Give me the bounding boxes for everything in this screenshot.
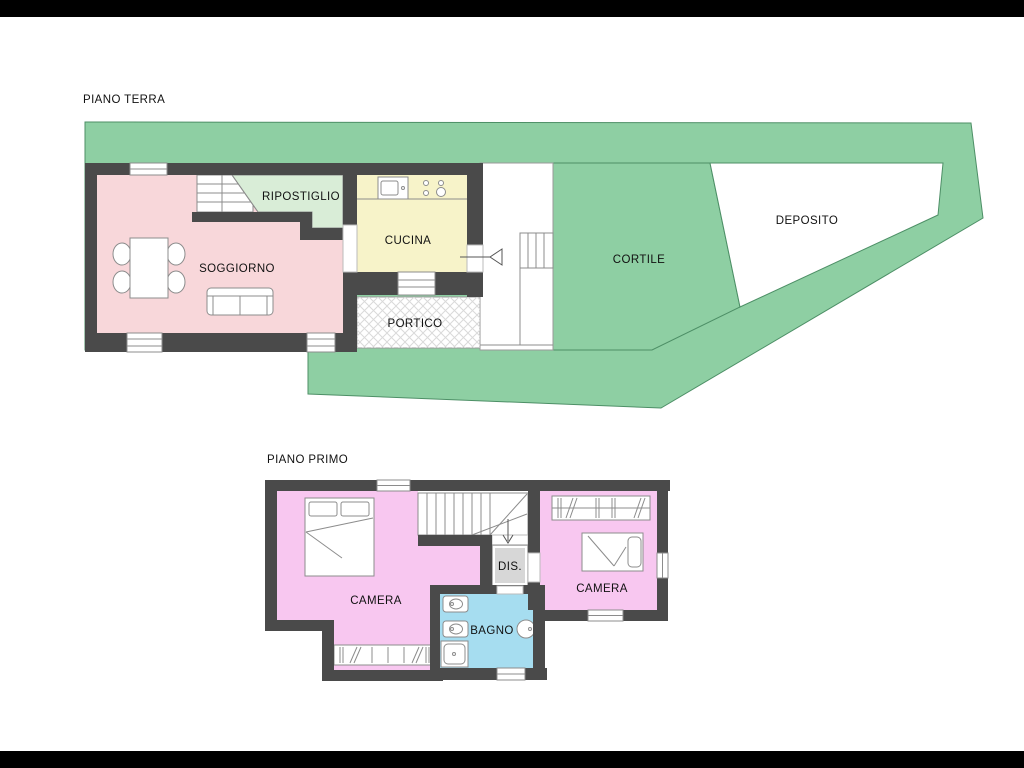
letterbox-bottom bbox=[0, 751, 1024, 768]
wardrobe-2-icon bbox=[552, 496, 650, 520]
first-floor-plan: PIANO PRIMO bbox=[265, 454, 670, 681]
door-dis-bagno bbox=[497, 586, 523, 594]
letterbox-top bbox=[0, 0, 1024, 17]
room-label-deposito: DEPOSITO bbox=[776, 215, 838, 227]
window-bagno-bottom bbox=[497, 668, 525, 680]
window-bottom-1 bbox=[127, 333, 162, 352]
sink-icon bbox=[378, 177, 408, 199]
shower-icon bbox=[441, 641, 468, 667]
wardrobe-1-icon bbox=[334, 645, 433, 665]
window-camera2-bottom bbox=[588, 610, 623, 621]
door-cucina-entry bbox=[467, 245, 483, 272]
room-label-cucina: CUCINA bbox=[385, 235, 432, 247]
window-first-top bbox=[377, 480, 410, 491]
double-bed-icon bbox=[305, 498, 374, 576]
room-label-dis: DIS. bbox=[498, 561, 522, 573]
bidet-icon bbox=[443, 621, 468, 637]
room-label-camera-1: CAMERA bbox=[350, 595, 402, 607]
room-cucina bbox=[357, 175, 467, 272]
washbasin-icon bbox=[517, 620, 535, 638]
toilet-icon bbox=[443, 596, 468, 612]
sofa-icon bbox=[207, 288, 273, 315]
room-label-camera-2: CAMERA bbox=[576, 583, 628, 595]
window-bottom-2 bbox=[307, 333, 335, 352]
ground-floor-plan: PIANO TERRA bbox=[83, 94, 983, 408]
room-label-bagno: BAGNO bbox=[470, 625, 514, 637]
ground-floor-title: PIANO TERRA bbox=[83, 94, 165, 106]
door-dis-camera2 bbox=[528, 553, 540, 582]
room-label-portico: PORTICO bbox=[388, 318, 443, 330]
room-label-cortile: CORTILE bbox=[613, 254, 665, 266]
door-soggiorno-cucina bbox=[343, 225, 357, 272]
window-cucina-portico bbox=[398, 272, 435, 295]
window-camera2-right bbox=[657, 553, 668, 578]
window-top bbox=[130, 163, 167, 175]
floorplan-image: PIANO TERRA bbox=[0, 0, 1024, 768]
room-label-soggiorno: SOGGIORNO bbox=[199, 263, 275, 275]
first-floor-title: PIANO PRIMO bbox=[267, 454, 348, 466]
room-label-ripostiglio: RIPOSTIGLIO bbox=[262, 191, 340, 203]
stairs-first-icon bbox=[418, 493, 528, 535]
single-bed-icon bbox=[582, 533, 643, 571]
